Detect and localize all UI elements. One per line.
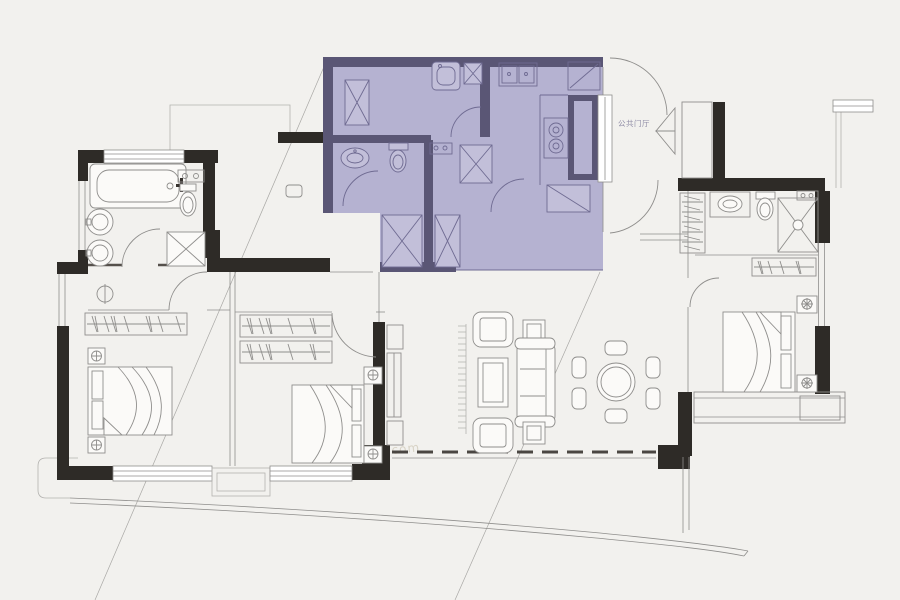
dining-area: [572, 341, 660, 423]
duct-shafts-bottom: [382, 215, 460, 267]
nightstand: [88, 348, 105, 364]
foyer: 公共门厅: [610, 58, 712, 233]
master-suite: [680, 191, 818, 392]
toilet-1: [180, 184, 196, 216]
bed-1: [88, 367, 172, 435]
round-basin-2: [86, 240, 113, 266]
wardrobe-master: [752, 258, 816, 276]
bedroom2-window: [270, 466, 352, 481]
master-window: [819, 243, 825, 326]
left-window-2: [59, 274, 65, 326]
living-sliding-door: [392, 452, 656, 458]
pendant-lamp: [97, 284, 113, 304]
toilet-3: [756, 192, 775, 220]
foyer-door-arc-top: [610, 58, 667, 115]
living-room: [387, 312, 555, 453]
wardrobe-1: [85, 313, 187, 335]
left-window-1: [79, 181, 85, 250]
floor-plan-drawing: 房天下Fang.com 房天下Fang.com Fang.com: [0, 0, 900, 600]
master-top-window: [833, 100, 873, 112]
bedroom1-door-arc: [169, 272, 207, 310]
master-bed: [723, 312, 795, 392]
entry-door-symbol: [656, 108, 675, 154]
foyer-label: 公共门厅: [618, 119, 650, 128]
kitchen-window: [598, 95, 612, 182]
dining-chair: [605, 341, 627, 355]
hall-fixture: [286, 185, 302, 197]
dining-chair: [646, 388, 660, 409]
coffee-table: [478, 358, 508, 407]
sofa: [515, 338, 555, 427]
nightstand: [364, 446, 382, 463]
closet-shelves: [680, 193, 705, 253]
bedroom-2: [240, 313, 382, 463]
master-bay-window: [694, 392, 845, 423]
bathroom1-door-arc: [122, 229, 160, 267]
bedroom2-door-arc: [332, 313, 376, 357]
bedroom-1: [85, 272, 207, 453]
highlight-zone: [323, 57, 603, 272]
wash-basin-oval: [341, 148, 369, 168]
bedroom1-window: [113, 466, 212, 481]
nightstand-lamp: [797, 375, 817, 392]
dining-chair: [572, 357, 586, 378]
washing-machine: [432, 62, 460, 90]
side-table: [523, 422, 545, 444]
dining-table: [597, 363, 635, 401]
foyer-door-arc-bottom: [610, 180, 658, 233]
nightstand: [88, 437, 105, 453]
bathtub: [90, 164, 186, 208]
rug: [458, 324, 466, 434]
shower: [778, 198, 818, 252]
bed-2: [292, 385, 364, 463]
armchair: [473, 418, 513, 453]
bath-window: [104, 150, 184, 163]
duct-shaft-bath: [167, 232, 205, 266]
dining-chair: [605, 409, 627, 423]
dining-chair: [572, 388, 586, 409]
appliance-box: [547, 185, 590, 212]
nightstand-lamp: [797, 296, 817, 313]
wardrobe-2b: [240, 341, 332, 363]
tv-console: [387, 325, 403, 445]
fridge: [460, 145, 492, 183]
shower-taps: [797, 191, 818, 200]
armchair: [473, 312, 513, 347]
elevator-shaft: [682, 102, 712, 178]
master-door-arc: [690, 278, 719, 307]
window-bay-bump: [212, 468, 270, 496]
nightstand: [364, 367, 382, 384]
wardrobe-2a: [240, 315, 332, 337]
bathroom-1: [86, 164, 205, 267]
dining-chair: [646, 357, 660, 378]
floor-plan-image: 房天下Fang.com 房天下Fang.com Fang.com: [0, 0, 900, 600]
round-basin-1: [86, 209, 113, 235]
master-basin: [710, 192, 750, 217]
